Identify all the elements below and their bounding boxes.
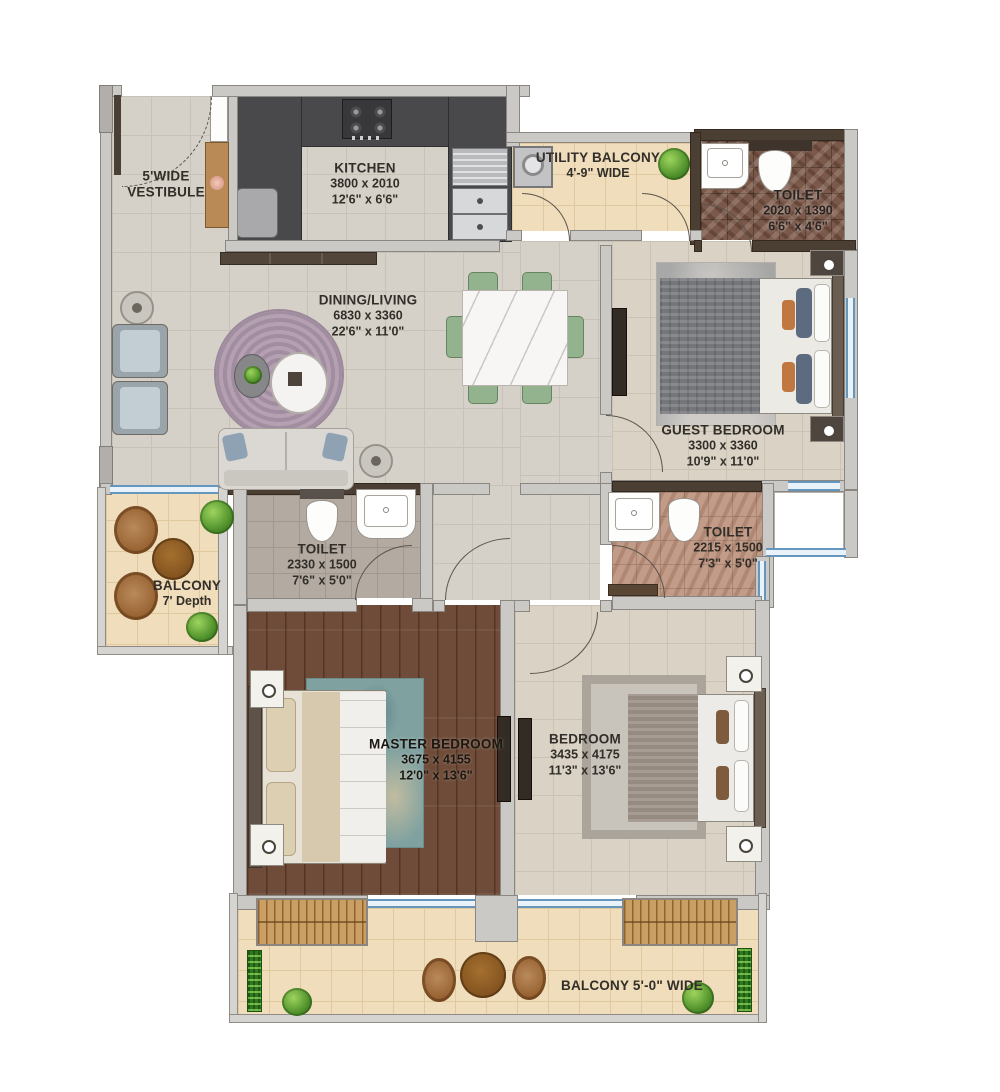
wc-tank [300, 489, 344, 499]
wall [247, 598, 357, 612]
room-label-master-toilet: TOILET 2330 x 1500 7'6" x 5'0" [287, 542, 357, 589]
wall [600, 600, 612, 612]
duct-window [766, 548, 846, 557]
balcony-slider-window [110, 485, 220, 494]
room-name: BEDROOM [549, 732, 622, 748]
room-dim-mm: 6830 x 3360 [319, 309, 418, 324]
floor-plan: 5'WIDE VESTIBULE KITCHEN 3800 x 2010 12'… [0, 0, 1000, 1092]
room-dim-mm: 3300 x 3360 [661, 439, 784, 454]
balcony-plant-icon [200, 500, 234, 534]
master-nightstand [250, 670, 284, 708]
coffee-table-decor [288, 372, 302, 386]
basin-drain [722, 160, 728, 166]
armchair-cushion [120, 387, 160, 429]
bedroom-bed-blanket [628, 694, 698, 822]
room-label-guest-toilet: TOILET 2020 x 1390 6'6" x 4'6" [763, 188, 833, 235]
room-label-vestibule: 5'WIDE VESTIBULE [127, 169, 205, 202]
wall [433, 483, 490, 495]
room-name: KITCHEN [330, 161, 400, 177]
wall [506, 230, 522, 241]
planter-center [132, 303, 142, 313]
room-label-balcony-bottom: BALCONY 5'-0" WIDE [561, 978, 703, 994]
wall [694, 240, 702, 252]
sink-drain-dot-2 [477, 224, 483, 230]
room-dim-mm: 3435 x 4175 [549, 748, 622, 763]
stove-knobs [352, 136, 382, 140]
room-dim-mm: 2330 x 1500 [287, 558, 357, 573]
console-decor [210, 176, 224, 190]
guest-bed-pillow [814, 350, 830, 408]
wall [612, 481, 762, 492]
left-balcony-wall [97, 487, 106, 654]
room-name: 5'WIDE [127, 169, 205, 185]
room-label-bedroom: BEDROOM 3435 x 4175 11'3" x 13'6" [549, 732, 622, 779]
balcony-plant-icon [282, 988, 312, 1016]
sink-drain-dot [477, 198, 483, 204]
room-name: UTILITY BALCONY [536, 150, 660, 166]
entry-door-leaf [114, 95, 121, 175]
room-name: DINING/LIVING [319, 293, 418, 309]
master-nightstand [250, 824, 284, 866]
balcony-table-icon [152, 538, 194, 580]
utility-plant-icon [658, 148, 690, 180]
guest-nightstand [810, 416, 844, 442]
sofa-backrest [224, 470, 348, 486]
bedroom-bed-cushion [716, 766, 729, 800]
wall [506, 132, 702, 143]
room-dim-ft: 10'9" x 11'0" [661, 454, 784, 469]
wall [844, 490, 858, 558]
room-label-dining-living: DINING/LIVING 6830 x 3360 22'6" x 11'0" [319, 293, 418, 340]
room-dim-ft: 7'3" x 5'0" [693, 556, 763, 571]
room-name: TOILET [763, 188, 833, 204]
room-name: TOILET [693, 525, 763, 541]
guest-bedroom-side-window [846, 298, 855, 398]
guest-bed-cushion-orange [782, 362, 795, 392]
room-dim-mm: 2020 x 1390 [763, 204, 833, 219]
table-plant-icon [244, 366, 262, 384]
room-dim-mm: 3800 x 2010 [330, 177, 400, 192]
room-name: GUEST BEDROOM [661, 423, 784, 439]
wall [225, 240, 500, 252]
master-wardrobe [256, 898, 368, 946]
stove-icon [342, 99, 392, 139]
basin-drain [383, 507, 389, 513]
kitchen-sideboard [220, 252, 377, 265]
guest-bedroom-window [788, 481, 840, 491]
guest-bed-cushion-orange [782, 300, 795, 330]
balcony-wall [758, 893, 767, 1023]
room-label-balcony-left: BALCONY 7' Depth [153, 578, 221, 610]
wall [212, 85, 530, 97]
wall [100, 85, 112, 495]
side-table-center [371, 456, 381, 466]
balcony-chair-icon [512, 956, 546, 1000]
balcony-chair-icon [114, 506, 158, 554]
bedroom-bed-headboard [754, 688, 766, 828]
balcony-chair-icon [422, 958, 456, 1002]
wall [844, 129, 858, 250]
bedroom-bed-pillow [734, 700, 749, 752]
hedge-icon [737, 948, 752, 1012]
wall [233, 605, 247, 910]
balcony-plant-icon [186, 612, 218, 642]
wall [433, 600, 445, 612]
wall [570, 230, 642, 241]
kitchen-door-panel [210, 96, 228, 142]
wall [420, 483, 433, 612]
room-label-kitchen: KITCHEN 3800 x 2010 12'6" x 6'6" [330, 161, 400, 208]
bedroom-wardrobe [622, 898, 738, 946]
wall-pier [475, 895, 518, 942]
room-label-guest-bedroom: GUEST BEDROOM 3300 x 3360 10'9" x 11'0" [661, 423, 784, 470]
fridge-icon [236, 188, 278, 238]
room-dim-ft: 6'6" x 4'6" [763, 219, 833, 234]
wall [600, 245, 612, 415]
room-dim-ft: 7' Depth [153, 595, 221, 610]
guest-bed-pillow-blue [796, 354, 812, 404]
duct-void [774, 492, 844, 549]
room-name: BALCONY 5'-0" WIDE [561, 978, 703, 994]
wall [690, 132, 701, 245]
armchair-cushion [120, 330, 160, 372]
room-dim-ft: 22'6" x 11'0" [319, 324, 418, 339]
dining-table [462, 290, 568, 386]
bedroom-bed-pillow [734, 760, 749, 812]
room-name: VESTIBULE [127, 185, 205, 201]
left-balcony-wall [97, 646, 233, 655]
hedge-icon [247, 950, 262, 1012]
room-label-common-toilet: TOILET 2215 x 1500 7'3" x 5'0" [693, 525, 763, 572]
balcony-wall [229, 1014, 767, 1023]
wall [233, 483, 247, 605]
wall [228, 96, 238, 244]
bedroom-tv-icon [518, 718, 532, 800]
wall [612, 596, 762, 610]
room-dim-mm: 2215 x 1500 [693, 541, 763, 556]
room-label-master-bedroom: MASTER BEDROOM 3675 x 4155 12'0" x 13'6" [369, 737, 503, 784]
toilet-bench [608, 584, 658, 596]
room-name: BALCONY [153, 578, 221, 594]
guest-bed-pillow-blue [796, 288, 812, 338]
guest-bed-blanket [660, 278, 760, 414]
room-dim-ft: 7'6" x 5'0" [287, 573, 357, 588]
bedroom-nightstand [726, 826, 762, 862]
wall-column [99, 85, 113, 133]
room-name: TOILET [287, 542, 357, 558]
balcony-wall [229, 893, 238, 1023]
sofa-cushion-line [285, 432, 287, 470]
guest-tv-icon [612, 308, 627, 396]
bedroom-window [518, 899, 636, 908]
wall [412, 598, 433, 612]
room-dim-ft: 11'3" x 13'6" [549, 763, 622, 778]
bedroom-nightstand [726, 656, 762, 692]
room-dim-ft: 12'0" x 13'6" [369, 768, 503, 783]
guest-bed-pillow [814, 284, 830, 342]
bedroom-bed-cushion [716, 710, 729, 744]
balcony-chair-icon [114, 572, 158, 620]
master-bedroom-window [368, 899, 492, 908]
basin-drain [631, 510, 637, 516]
room-dim-ft: 12'6" x 6'6" [330, 192, 400, 207]
balcony-table-icon [460, 952, 506, 998]
guest-nightstand [810, 250, 844, 276]
room-dim-mm: 3675 x 4155 [369, 753, 503, 768]
guest-bed-headboard [832, 272, 844, 420]
master-bed-runner [302, 692, 340, 862]
wall [520, 483, 612, 495]
kitchen-drainboard [452, 148, 508, 186]
master-bed-pillow [266, 698, 296, 772]
room-label-utility-balcony: UTILITY BALCONY 4'-9" WIDE [536, 150, 660, 182]
room-dim-ft: 4'-9" WIDE [536, 167, 660, 182]
room-name: MASTER BEDROOM [369, 737, 503, 753]
